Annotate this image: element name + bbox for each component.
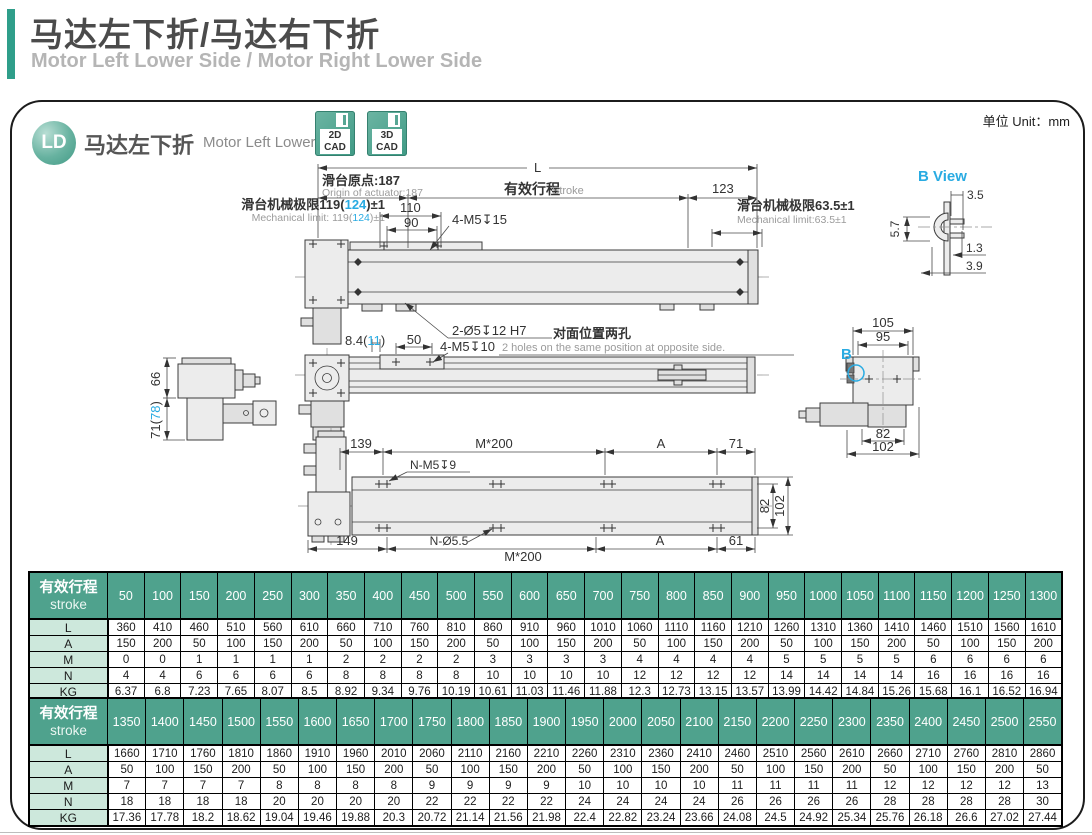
dim-label-149: 149 xyxy=(336,533,358,548)
stroke-value-cell: 1000 xyxy=(805,572,842,619)
table-row: N181818182020202022222222242424242626262… xyxy=(29,794,1062,810)
value-cell: 50 xyxy=(566,762,604,778)
value-cell: 2010 xyxy=(375,745,413,762)
value-cell: 2560 xyxy=(795,745,833,762)
value-cell: 23.24 xyxy=(642,810,680,827)
stroke-value-cell: 1450 xyxy=(184,698,222,745)
value-cell: 1860 xyxy=(260,745,298,762)
row-label-cell: A xyxy=(29,636,108,652)
value-cell: 20.72 xyxy=(413,810,451,827)
value-cell: 2760 xyxy=(947,745,985,762)
value-cell: 1110 xyxy=(658,619,695,636)
value-cell: 12 xyxy=(947,778,985,794)
stroke-value-cell: 1500 xyxy=(222,698,260,745)
dim-label-5-7: 5.7 xyxy=(888,220,902,237)
stroke-value-cell: 1700 xyxy=(375,698,413,745)
pin-callout: 2-Ø5↧12 H7 xyxy=(452,323,526,338)
value-cell: 8 xyxy=(364,668,401,684)
value-cell: 20 xyxy=(260,794,298,810)
value-cell: 2660 xyxy=(871,745,909,762)
value-cell: 2460 xyxy=(718,745,756,762)
value-cell: 16 xyxy=(915,668,952,684)
row-label-cell: N xyxy=(29,668,108,684)
value-cell: 24.5 xyxy=(756,810,794,827)
dim-label-m200-top: M*200 xyxy=(475,436,513,451)
value-cell: 7 xyxy=(108,778,146,794)
value-cell: 6 xyxy=(915,652,952,668)
value-cell: 2060 xyxy=(413,745,451,762)
dim-label-3-9: 3.9 xyxy=(966,259,983,273)
value-cell: 200 xyxy=(833,762,871,778)
value-cell: 2160 xyxy=(489,745,527,762)
stroke-value-cell: 1150 xyxy=(915,572,952,619)
value-cell: 12 xyxy=(658,668,695,684)
bottom-view: 139 M*200 A 71 N-M5↧9 149 N-Ø5.5 M*200 A… xyxy=(298,428,793,564)
dim-label-71-bottom: 71 xyxy=(729,436,743,451)
table-row: L360410460510560610660710760810860910960… xyxy=(29,619,1062,636)
value-cell: 1260 xyxy=(768,619,805,636)
value-cell: 5 xyxy=(768,652,805,668)
stroke-value-cell: 2400 xyxy=(909,698,947,745)
value-cell: 150 xyxy=(695,636,732,652)
value-cell: 22.4 xyxy=(566,810,604,827)
value-cell: 610 xyxy=(291,619,328,636)
row-label-cell: A xyxy=(29,762,108,778)
value-cell: 50 xyxy=(328,636,365,652)
datasheet-page: 马达左下折/马达右下折 Motor Left Lower Side / Moto… xyxy=(0,0,1092,835)
value-cell: 2510 xyxy=(756,745,794,762)
value-cell: 9 xyxy=(413,778,451,794)
value-cell: 24.92 xyxy=(795,810,833,827)
dim-label-a-top: A xyxy=(657,436,666,451)
stroke-value-cell: 200 xyxy=(218,572,255,619)
value-cell: 16 xyxy=(952,668,989,684)
dim-label-82-rail: 82 xyxy=(757,499,772,513)
value-cell: 100 xyxy=(952,636,989,652)
stroke-value-cell: 2100 xyxy=(680,698,718,745)
value-cell: 2 xyxy=(401,652,438,668)
value-cell: 10 xyxy=(585,668,622,684)
value-cell: 27.44 xyxy=(1024,810,1062,827)
value-cell: 19.04 xyxy=(260,810,298,827)
value-cell: 150 xyxy=(184,762,222,778)
value-cell: 18 xyxy=(222,794,260,810)
value-cell: 17.78 xyxy=(146,810,184,827)
dim-label-95: 95 xyxy=(876,329,890,344)
value-cell: 200 xyxy=(585,636,622,652)
value-cell: 28 xyxy=(985,794,1023,810)
value-cell: 200 xyxy=(878,636,915,652)
stroke-value-cell: 2000 xyxy=(604,698,642,745)
value-cell: 100 xyxy=(298,762,336,778)
value-cell: 4 xyxy=(144,668,181,684)
stroke-value-cell: 1650 xyxy=(337,698,375,745)
table-header-row: 有效行程stroke135014001450150015501600165017… xyxy=(29,698,1062,745)
stroke-value-cell: 50 xyxy=(108,572,145,619)
value-cell: 7 xyxy=(222,778,260,794)
table-header-row: 有效行程stroke501001502002503003504004505005… xyxy=(29,572,1062,619)
stroke-value-cell: 2300 xyxy=(833,698,871,745)
stroke-value-cell: 950 xyxy=(768,572,805,619)
value-cell: 2 xyxy=(438,652,475,668)
value-cell: 3 xyxy=(511,652,548,668)
hole-callout-mid: 4-M5↧10 xyxy=(440,339,495,354)
value-cell: 1660 xyxy=(108,745,146,762)
value-cell: 20 xyxy=(298,794,336,810)
row-label-cell: M xyxy=(29,652,108,668)
value-cell: 8 xyxy=(337,778,375,794)
row-label-cell: L xyxy=(29,619,108,636)
value-cell: 4 xyxy=(658,652,695,668)
value-cell: 8 xyxy=(401,668,438,684)
limit-right-en: Mechanical limit:63.5±1 xyxy=(737,214,847,226)
value-cell: 1560 xyxy=(988,619,1025,636)
note-en: 2 holes on the same position at opposite… xyxy=(502,342,725,354)
value-cell: 1 xyxy=(254,652,291,668)
value-cell: 21.98 xyxy=(527,810,565,827)
dim-label-a-bottom: A xyxy=(656,533,665,548)
value-cell: 12 xyxy=(731,668,768,684)
value-cell: 22 xyxy=(451,794,489,810)
stroke-header-cell: 有效行程stroke xyxy=(29,572,108,619)
stroke-value-cell: 1350 xyxy=(108,698,146,745)
value-cell: 22 xyxy=(489,794,527,810)
value-cell: 2 xyxy=(364,652,401,668)
value-cell: 50 xyxy=(915,636,952,652)
stroke-value-cell: 1850 xyxy=(489,698,527,745)
value-cell: 7 xyxy=(184,778,222,794)
value-cell: 28 xyxy=(871,794,909,810)
value-cell: 100 xyxy=(451,762,489,778)
stroke-value-cell: 750 xyxy=(621,572,658,619)
value-cell: 21.56 xyxy=(489,810,527,827)
value-cell: 100 xyxy=(364,636,401,652)
stroke-value-cell: 500 xyxy=(438,572,475,619)
value-cell: 13 xyxy=(1024,778,1062,794)
value-cell: 1410 xyxy=(878,619,915,636)
dim-label-105: 105 xyxy=(872,315,894,330)
value-cell: 1010 xyxy=(585,619,622,636)
stroke-table-2: 有效行程stroke135014001450150015501600165017… xyxy=(28,697,1063,827)
value-cell: 26.6 xyxy=(947,810,985,827)
value-cell: 200 xyxy=(144,636,181,652)
value-cell: 150 xyxy=(548,636,585,652)
value-cell: 11 xyxy=(718,778,756,794)
stroke-value-cell: 1400 xyxy=(146,698,184,745)
value-cell: 2610 xyxy=(833,745,871,762)
row-label-cell: KG xyxy=(29,810,108,827)
value-cell: 23.66 xyxy=(680,810,718,827)
origin-label-cn: 滑台原点:187 xyxy=(322,173,400,188)
value-cell: 200 xyxy=(527,762,565,778)
stroke-header-cell: 有效行程stroke xyxy=(29,698,108,745)
stroke-value-cell: 350 xyxy=(328,572,365,619)
limit-left-cn: 滑台机械极限119(124)±1 xyxy=(241,197,385,212)
value-cell: 22.82 xyxy=(604,810,642,827)
stroke-value-cell: 900 xyxy=(731,572,768,619)
value-cell: 3 xyxy=(548,652,585,668)
stroke-value-cell: 1200 xyxy=(952,572,989,619)
table-row: KG17.3617.7818.218.6219.0419.4619.8820.3… xyxy=(29,810,1062,827)
value-cell: 1360 xyxy=(842,619,879,636)
stroke-value-cell: 800 xyxy=(658,572,695,619)
value-cell: 150 xyxy=(642,762,680,778)
top-view: L 滑台原点:187 Origin of actuator:187 有效行程 S… xyxy=(241,160,854,344)
value-cell: 10 xyxy=(511,668,548,684)
value-cell: 25.76 xyxy=(871,810,909,827)
value-cell: 3 xyxy=(585,652,622,668)
value-cell: 26.18 xyxy=(909,810,947,827)
b-view-title: B View xyxy=(918,168,967,185)
stroke-table-1: 有效行程stroke501001502002503003504004505005… xyxy=(28,571,1063,701)
dim-label-71-78: 71(78) xyxy=(148,401,163,439)
value-cell: 10 xyxy=(566,778,604,794)
value-cell: 2110 xyxy=(451,745,489,762)
value-cell: 10 xyxy=(604,778,642,794)
value-cell: 11 xyxy=(833,778,871,794)
value-cell: 18.62 xyxy=(222,810,260,827)
value-cell: 30 xyxy=(1024,794,1062,810)
stroke-value-cell: 450 xyxy=(401,572,438,619)
value-cell: 26 xyxy=(756,794,794,810)
value-cell: 11 xyxy=(756,778,794,794)
value-cell: 26 xyxy=(833,794,871,810)
value-cell: 200 xyxy=(222,762,260,778)
value-cell: 18 xyxy=(108,794,146,810)
stroke-value-cell: 650 xyxy=(548,572,585,619)
stroke-value-cell: 850 xyxy=(695,572,732,619)
stroke-value-cell: 1600 xyxy=(298,698,336,745)
value-cell: 1160 xyxy=(695,619,732,636)
dim-label-61: 61 xyxy=(729,533,743,548)
value-cell: 200 xyxy=(985,762,1023,778)
value-cell: 1760 xyxy=(184,745,222,762)
dim-label-m200-bottom: M*200 xyxy=(504,549,542,564)
dim-label-110: 110 xyxy=(400,200,421,215)
value-cell: 6 xyxy=(952,652,989,668)
stroke-value-cell: 2250 xyxy=(795,698,833,745)
value-cell: 560 xyxy=(254,619,291,636)
stroke-value-cell: 150 xyxy=(181,572,218,619)
value-cell: 1 xyxy=(291,652,328,668)
value-cell: 50 xyxy=(475,636,512,652)
row-label-cell: L xyxy=(29,745,108,762)
value-cell: 4 xyxy=(695,652,732,668)
value-cell: 960 xyxy=(548,619,585,636)
value-cell: 10 xyxy=(680,778,718,794)
stroke-value-cell: 1100 xyxy=(878,572,915,619)
stroke-value-cell: 2050 xyxy=(642,698,680,745)
value-cell: 50 xyxy=(768,636,805,652)
value-cell: 4 xyxy=(108,668,145,684)
table-row: A150200501001502005010015020050100150200… xyxy=(29,636,1062,652)
dim-label-102-end: 102 xyxy=(872,439,894,454)
value-cell: 9 xyxy=(451,778,489,794)
b-mark-label: B xyxy=(841,346,852,363)
value-cell: 3 xyxy=(475,652,512,668)
value-cell: 19.88 xyxy=(337,810,375,827)
value-cell: 6 xyxy=(988,652,1025,668)
stroke-value-cell: 1750 xyxy=(413,698,451,745)
value-cell: 2360 xyxy=(642,745,680,762)
value-cell: 200 xyxy=(1025,636,1062,652)
value-cell: 2260 xyxy=(566,745,604,762)
value-cell: 11 xyxy=(795,778,833,794)
row-label-cell: N xyxy=(29,794,108,810)
value-cell: 5 xyxy=(878,652,915,668)
value-cell: 50 xyxy=(718,762,756,778)
value-cell: 5 xyxy=(805,652,842,668)
table-row: M77778888999910101010111111111212121213 xyxy=(29,778,1062,794)
value-cell: 26 xyxy=(795,794,833,810)
dim-label-1-3: 1.3 xyxy=(966,241,983,255)
value-cell: 0 xyxy=(144,652,181,668)
note-cn: 对面位置两孔 xyxy=(553,326,631,341)
value-cell: 150 xyxy=(401,636,438,652)
value-cell: 860 xyxy=(475,619,512,636)
limit-right-cn: 滑台机械极限63.5±1 xyxy=(737,198,855,213)
value-cell: 1510 xyxy=(952,619,989,636)
value-cell: 4 xyxy=(731,652,768,668)
stroke-value-cell: 1550 xyxy=(260,698,298,745)
dim-label-90: 90 xyxy=(404,215,418,230)
value-cell: 25.34 xyxy=(833,810,871,827)
hole-callout-bottom-bottom: N-Ø5.5 xyxy=(430,534,469,548)
dim-label-8-4-11: 8.4(11) xyxy=(345,333,385,348)
value-cell: 8 xyxy=(298,778,336,794)
stroke-value-cell: 2450 xyxy=(947,698,985,745)
value-cell: 27.02 xyxy=(985,810,1023,827)
value-cell: 12 xyxy=(985,778,1023,794)
value-cell: 1210 xyxy=(731,619,768,636)
value-cell: 100 xyxy=(511,636,548,652)
value-cell: 50 xyxy=(260,762,298,778)
value-cell: 360 xyxy=(108,619,145,636)
stroke-value-cell: 2350 xyxy=(871,698,909,745)
value-cell: 24 xyxy=(642,794,680,810)
value-cell: 24 xyxy=(566,794,604,810)
value-cell: 510 xyxy=(218,619,255,636)
value-cell: 2 xyxy=(328,652,365,668)
value-cell: 6 xyxy=(291,668,328,684)
hole-callout-bottom-top: N-M5↧9 xyxy=(410,458,456,472)
value-cell: 100 xyxy=(658,636,695,652)
value-cell: 410 xyxy=(144,619,181,636)
value-cell: 20 xyxy=(337,794,375,810)
value-cell: 10 xyxy=(475,668,512,684)
value-cell: 10 xyxy=(548,668,585,684)
value-cell: 12 xyxy=(909,778,947,794)
value-cell: 1710 xyxy=(146,745,184,762)
value-cell: 17.36 xyxy=(108,810,146,827)
value-cell: 1060 xyxy=(621,619,658,636)
value-cell: 12 xyxy=(871,778,909,794)
dim-label-L: L xyxy=(534,160,541,175)
value-cell: 2710 xyxy=(909,745,947,762)
value-cell: 18 xyxy=(184,794,222,810)
value-cell: 1 xyxy=(181,652,218,668)
value-cell: 5 xyxy=(842,652,879,668)
row-label-cell: M xyxy=(29,778,108,794)
value-cell: 14 xyxy=(878,668,915,684)
value-cell: 760 xyxy=(401,619,438,636)
value-cell: 18.2 xyxy=(184,810,222,827)
value-cell: 28 xyxy=(909,794,947,810)
value-cell: 6 xyxy=(1025,652,1062,668)
value-cell: 1910 xyxy=(298,745,336,762)
stroke-value-cell: 2550 xyxy=(1024,698,1062,745)
value-cell: 22 xyxy=(527,794,565,810)
stroke-value-cell: 2200 xyxy=(756,698,794,745)
value-cell: 24 xyxy=(680,794,718,810)
value-cell: 50 xyxy=(108,762,146,778)
value-cell: 100 xyxy=(218,636,255,652)
middle-view: 66 71(78) xyxy=(148,315,922,458)
value-cell: 1960 xyxy=(337,745,375,762)
value-cell: 4 xyxy=(621,652,658,668)
value-cell: 26 xyxy=(718,794,756,810)
value-cell: 1 xyxy=(218,652,255,668)
stroke-value-cell: 400 xyxy=(364,572,401,619)
value-cell: 660 xyxy=(328,619,365,636)
stroke-value-cell: 550 xyxy=(475,572,512,619)
value-cell: 9 xyxy=(489,778,527,794)
dim-label-66: 66 xyxy=(148,372,163,386)
value-cell: 28 xyxy=(947,794,985,810)
value-cell: 100 xyxy=(805,636,842,652)
stroke-value-cell: 1050 xyxy=(842,572,879,619)
value-cell: 150 xyxy=(108,636,145,652)
stroke-label-en: Stroke xyxy=(552,185,584,197)
b-view: B View 3.5 5.7 1.3 3.9 xyxy=(888,168,992,276)
limit-left-en: Mechanical limit: 119(124)±1 xyxy=(252,212,386,224)
value-cell: 710 xyxy=(364,619,401,636)
value-cell: 8 xyxy=(260,778,298,794)
value-cell: 7 xyxy=(146,778,184,794)
value-cell: 9 xyxy=(527,778,565,794)
value-cell: 1810 xyxy=(222,745,260,762)
value-cell: 200 xyxy=(680,762,718,778)
stroke-value-cell: 2500 xyxy=(985,698,1023,745)
table-row: N446666888810101010121212121414141416161… xyxy=(29,668,1062,684)
value-cell: 100 xyxy=(146,762,184,778)
value-cell: 50 xyxy=(621,636,658,652)
value-cell: 200 xyxy=(375,762,413,778)
stroke-value-cell: 250 xyxy=(254,572,291,619)
table-row: L166017101760181018601910196020102060211… xyxy=(29,745,1062,762)
value-cell: 200 xyxy=(731,636,768,652)
value-cell: 100 xyxy=(604,762,642,778)
value-cell: 100 xyxy=(909,762,947,778)
value-cell: 14 xyxy=(768,668,805,684)
stroke-value-cell: 1800 xyxy=(451,698,489,745)
value-cell: 2860 xyxy=(1024,745,1062,762)
stroke-value-cell: 1250 xyxy=(988,572,1025,619)
value-cell: 50 xyxy=(1024,762,1062,778)
value-cell: 6 xyxy=(218,668,255,684)
value-cell: 2410 xyxy=(680,745,718,762)
stroke-value-cell: 100 xyxy=(144,572,181,619)
value-cell: 24 xyxy=(604,794,642,810)
value-cell: 24.08 xyxy=(718,810,756,827)
value-cell: 16 xyxy=(988,668,1025,684)
value-cell: 200 xyxy=(438,636,475,652)
value-cell: 0 xyxy=(108,652,145,668)
value-cell: 1310 xyxy=(805,619,842,636)
dim-label-139: 139 xyxy=(350,436,372,451)
stroke-value-cell: 1300 xyxy=(1025,572,1062,619)
value-cell: 21.14 xyxy=(451,810,489,827)
